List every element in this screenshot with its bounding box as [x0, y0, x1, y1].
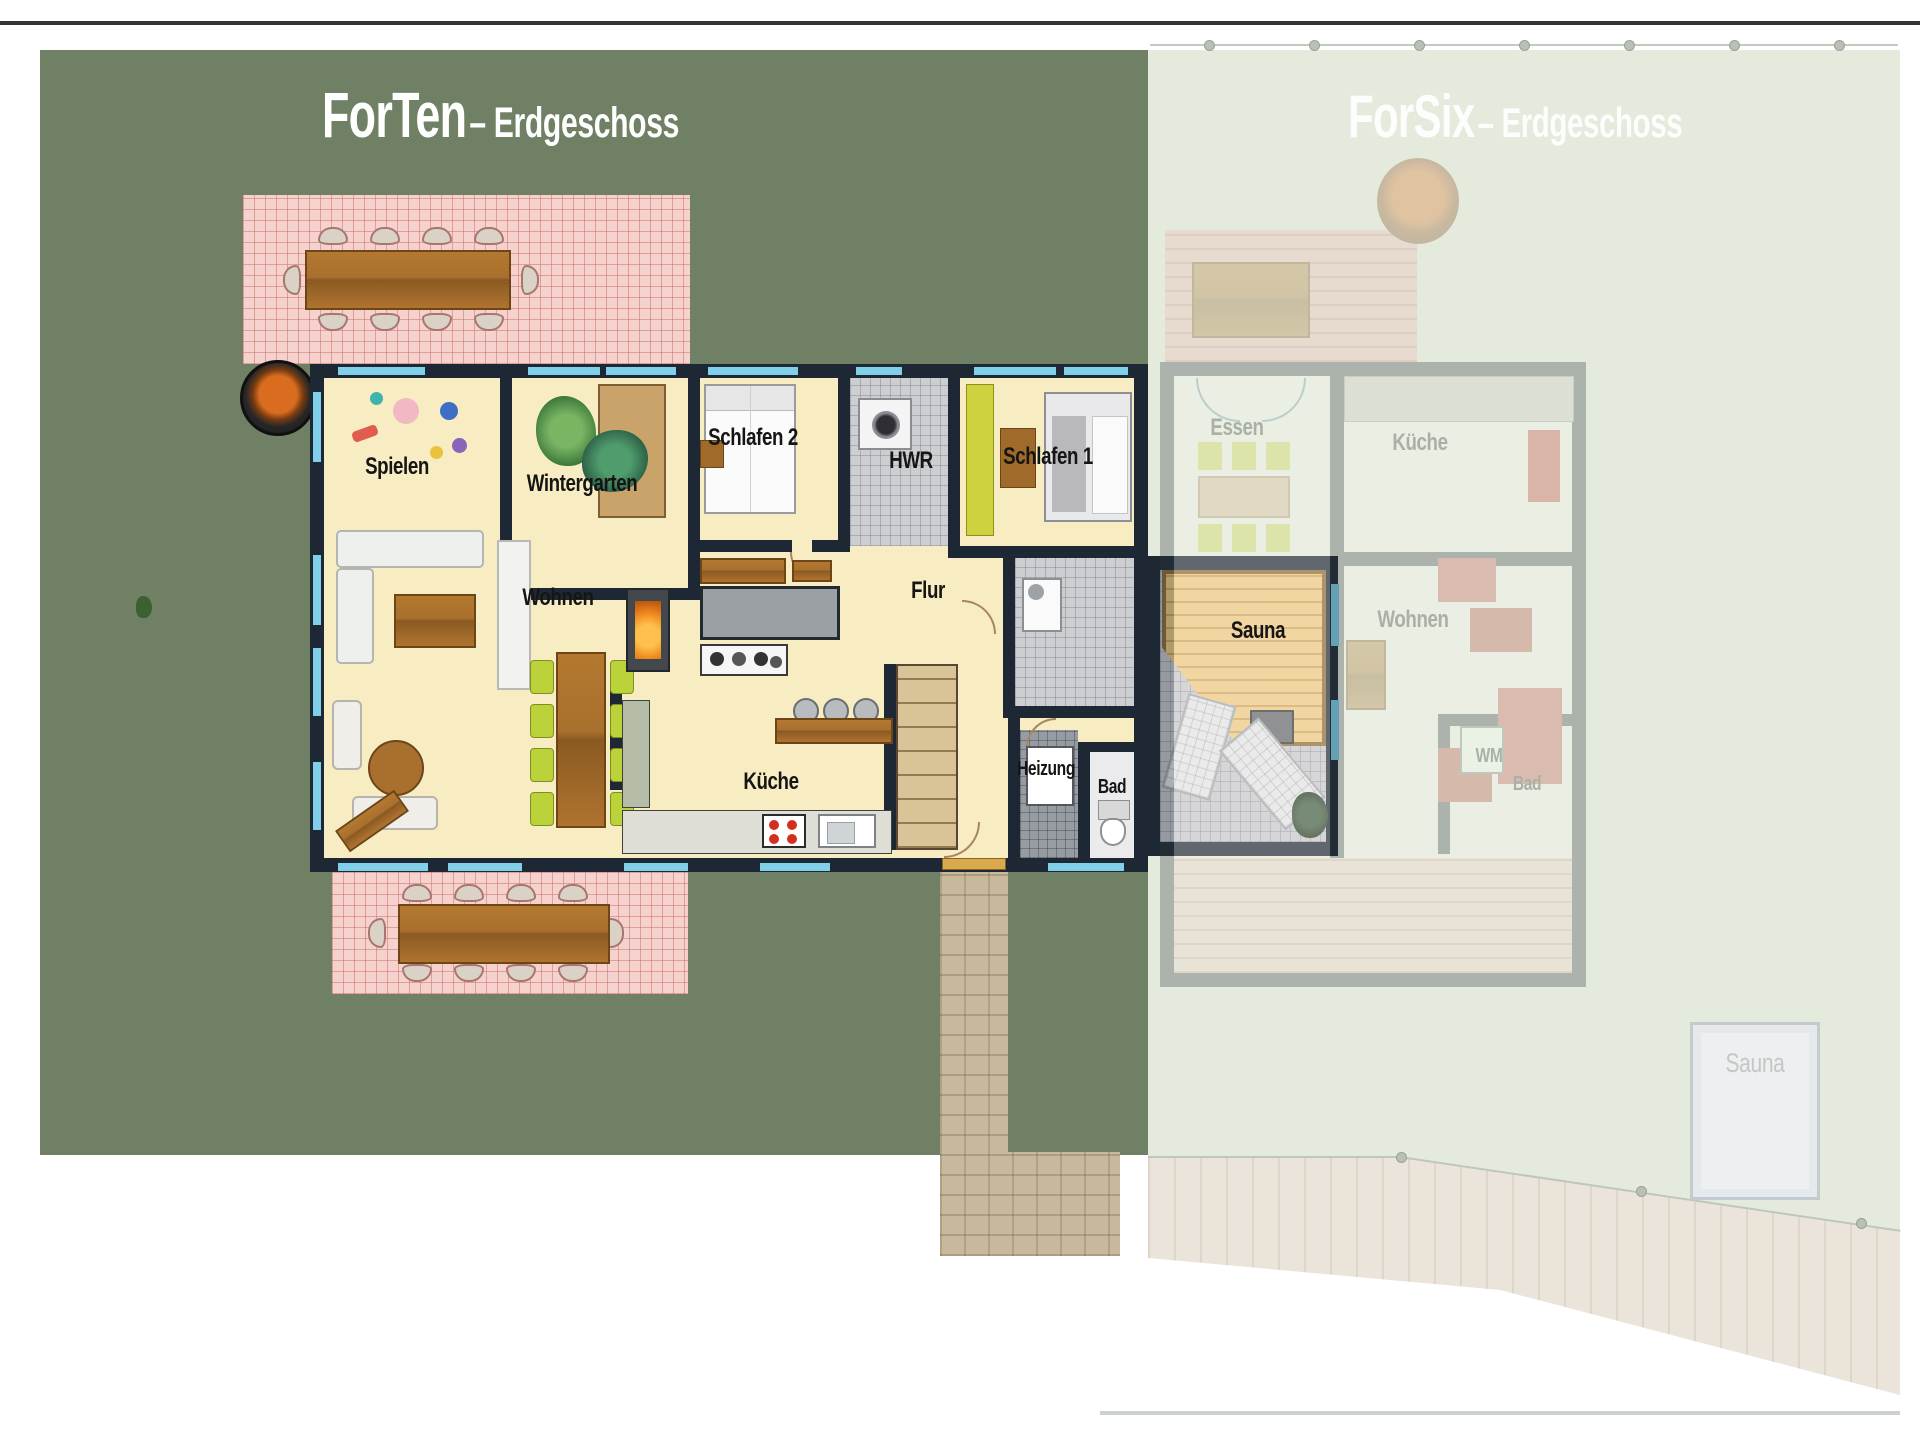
brochure-page: ForTen – Erdgeschoss ForSix – Erdgeschos… — [0, 0, 1920, 1440]
forsix-essen-chair — [1232, 442, 1256, 470]
forsix-outdoor-table — [1192, 262, 1310, 338]
forsix-essen-chair — [1198, 442, 1222, 470]
forsix-essen-chair — [1232, 524, 1256, 552]
forsix-faded-plan — [0, 0, 1920, 1440]
forsix-room-label-bad: Bad — [1513, 773, 1541, 796]
room-label-heizung: Heizung — [1017, 758, 1075, 781]
room-label-kueche: Küche — [743, 768, 798, 796]
forsix-sofa — [1470, 608, 1532, 652]
forsix-kitchen-counter — [1344, 376, 1574, 422]
room-label-wintergarten: Wintergarten — [527, 470, 638, 498]
forsix-essen-chair — [1266, 442, 1290, 470]
forsix-red-unit — [1528, 430, 1560, 502]
forsix-essen-chair — [1266, 524, 1290, 552]
forsix-sofa — [1438, 558, 1496, 602]
room-label-sauna: Sauna — [1231, 617, 1285, 645]
forsix-bottom-terrace — [1174, 858, 1572, 973]
room-label-spielen: Spielen — [365, 453, 429, 481]
forsix-room-label-kueche: Küche — [1392, 429, 1447, 457]
forsix-garden-sauna-label: Sauna — [1726, 1048, 1785, 1079]
forsix-essen-chair — [1198, 524, 1222, 552]
room-label-flur: Flur — [911, 577, 945, 605]
room-label-bad: Bad — [1098, 776, 1126, 799]
room-label-wohnen: Wohnen — [522, 584, 593, 612]
forsix-essen-table — [1198, 476, 1290, 518]
forsix-sofa — [1498, 688, 1562, 784]
forsix-grill — [1377, 158, 1459, 244]
forsix-wood-table — [1346, 640, 1386, 710]
room-label-hwr: HWR — [889, 447, 933, 475]
room-label-schlafen1: Schlafen 1 — [1003, 443, 1093, 471]
forsix-room-label-wohnen: Wohnen — [1377, 606, 1448, 634]
forsix-room-label-wm: WM — [1476, 745, 1503, 768]
forsix-room-label-essen: Essen — [1210, 414, 1263, 442]
room-label-schlafen2: Schlafen 2 — [708, 424, 798, 452]
